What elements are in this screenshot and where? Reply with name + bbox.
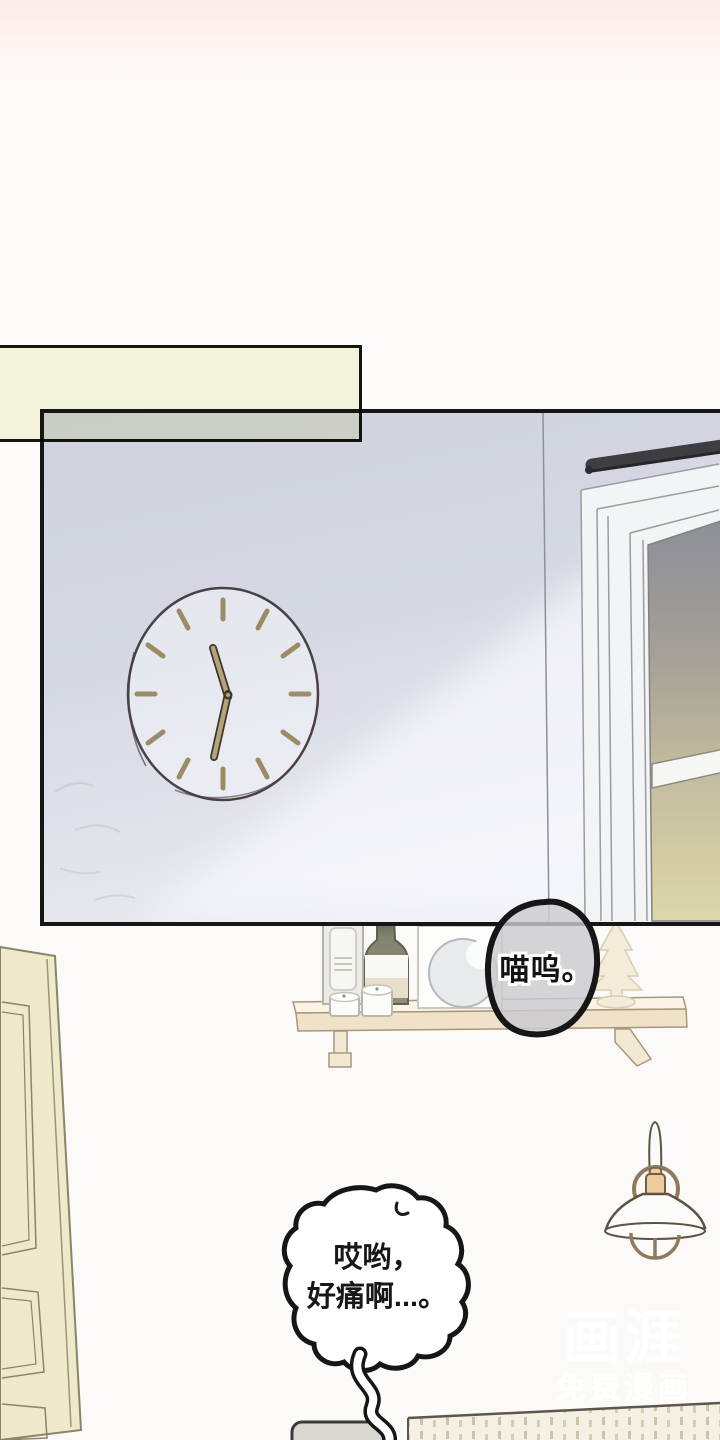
watermark-subtitle: 免费漫画: [556, 1374, 692, 1404]
pain-bubble-text: 哎哟， 好痛啊...。: [287, 1239, 467, 1317]
comic-page: 喵呜。 哎哟， 好痛啊...。 画涯 免费漫画: [0, 0, 720, 1440]
pain-bubble-line1: 哎哟，: [287, 1239, 467, 1278]
pain-bubble-line2: 好痛啊...。: [287, 1278, 467, 1317]
speech-bubbles-layer: [0, 0, 720, 1440]
site-watermark: 画涯 免费漫画: [556, 1310, 692, 1404]
meow-bubble-text: 喵呜。: [489, 945, 603, 989]
watermark-logo: 画涯: [556, 1310, 692, 1368]
